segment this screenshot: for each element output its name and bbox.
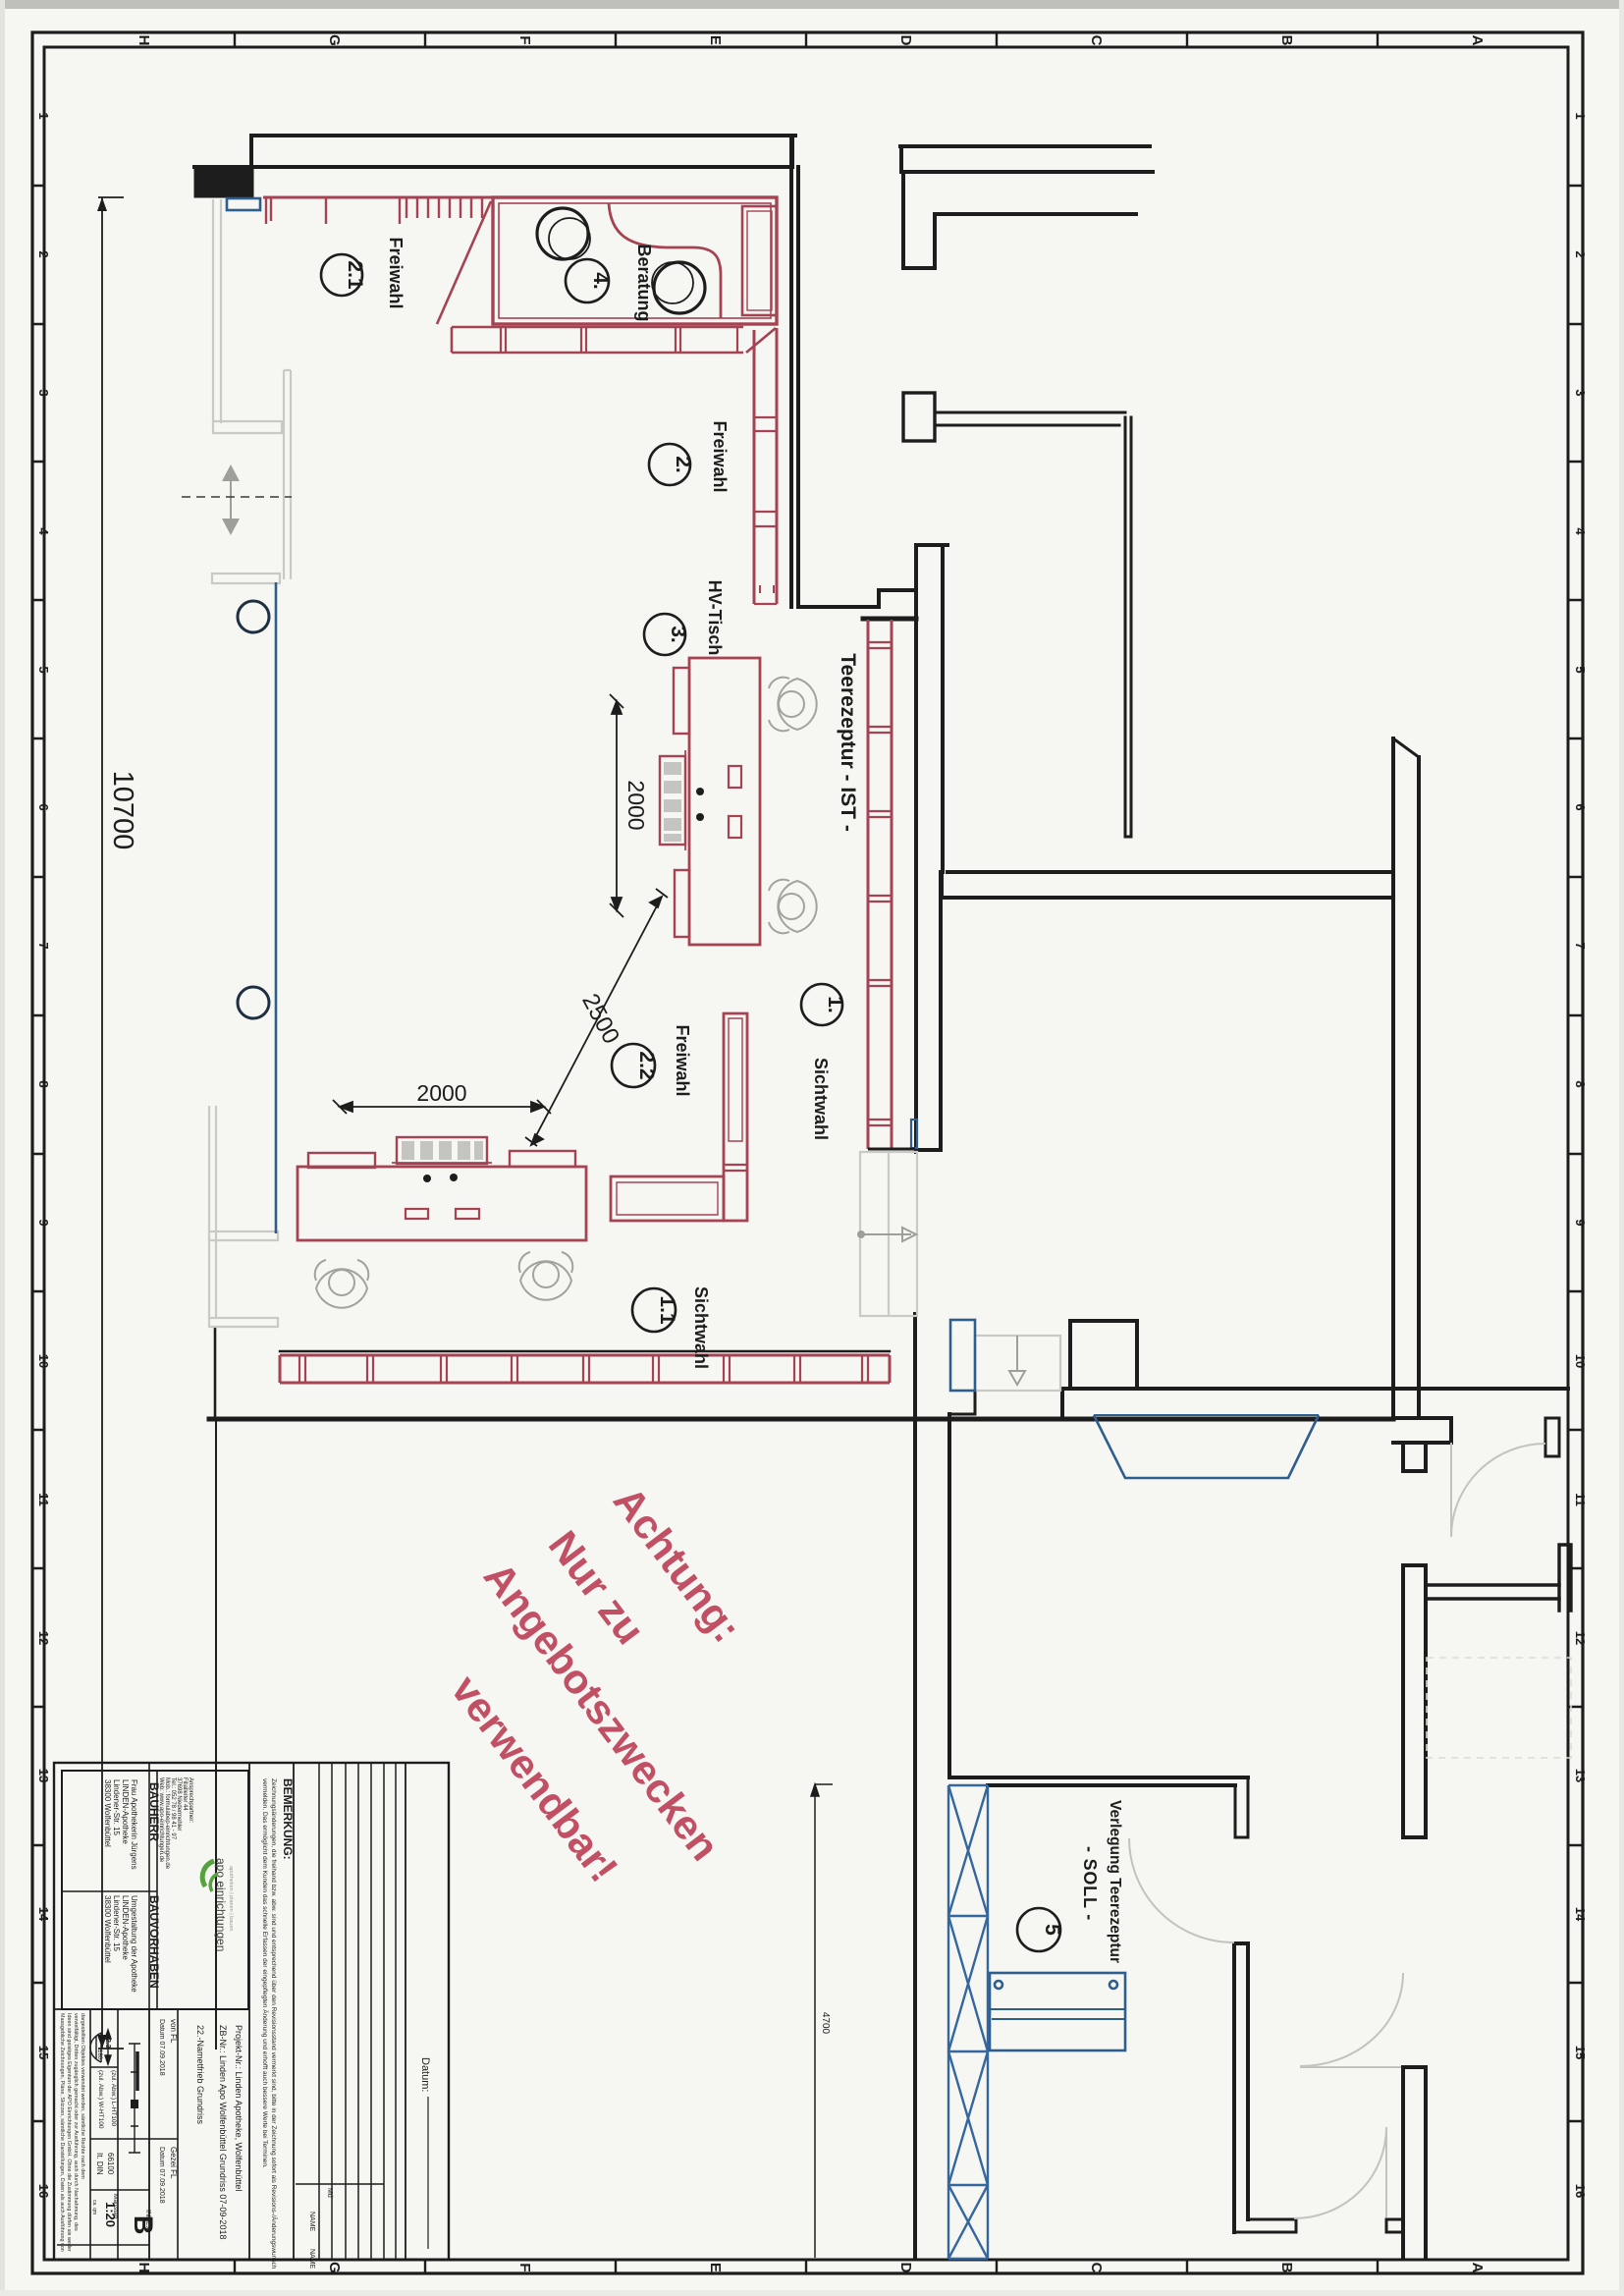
svg-text:14: 14 xyxy=(1573,1907,1588,1922)
svg-text:1: 1 xyxy=(36,112,51,119)
svg-text:2.2: 2.2 xyxy=(635,1051,658,1079)
svg-text:3.: 3. xyxy=(667,626,689,643)
svg-text:1.: 1. xyxy=(824,996,846,1013)
svg-text:11: 11 xyxy=(36,1493,51,1506)
svg-text:10: 10 xyxy=(1573,1354,1588,1368)
svg-text:5: 5 xyxy=(36,666,51,673)
svg-text:H: H xyxy=(135,2263,152,2273)
svg-text:9: 9 xyxy=(36,1219,51,1226)
svg-text:16: 16 xyxy=(36,2184,51,2198)
svg-text:B: B xyxy=(1278,35,1295,46)
svg-text:2.: 2. xyxy=(672,456,694,473)
svg-text:4.: 4. xyxy=(589,272,612,290)
svg-text:BAUVORHABEN: BAUVORHABEN xyxy=(147,1895,161,1989)
svg-text:1:20: 1:20 xyxy=(103,2202,118,2227)
svg-text:Datum:: Datum: xyxy=(419,2057,431,2092)
svg-text:Sichtwahl: Sichtwahl xyxy=(811,1058,831,1140)
svg-text:D: D xyxy=(897,2263,914,2273)
svg-text:Beratung: Beratung xyxy=(634,244,654,321)
svg-text:BEMERKUNG:: BEMERKUNG: xyxy=(281,1778,295,1860)
svg-text:H: H xyxy=(135,35,152,46)
svg-text:2000: 2000 xyxy=(623,780,649,830)
svg-text:E: E xyxy=(707,35,724,45)
svg-text:A: A xyxy=(1469,35,1486,46)
svg-text:(zul. Abw.) W-HT100: (zul. Abw.) W-HT100 xyxy=(97,2070,104,2129)
svg-text:E: E xyxy=(707,2263,724,2272)
svg-text:8: 8 xyxy=(36,1080,51,1087)
svg-text:dargestellten Objektes verwend: dargestellten Objektes verwendet werden,… xyxy=(80,2013,85,2179)
svg-text:4: 4 xyxy=(1573,527,1588,535)
svg-text:2000: 2000 xyxy=(416,1080,466,1106)
svg-text:B: B xyxy=(1278,2263,1295,2273)
svg-text:Lindener-Str. 15: Lindener-Str. 15 xyxy=(112,1895,121,1951)
svg-text:Ideen sind geistiges Eigentum: Ideen sind geistiges Eigentum der APO Ei… xyxy=(66,2013,72,2252)
svg-text:G: G xyxy=(326,2262,343,2273)
svg-text:vervielfältigt, Dritten zugäng: vervielfältigt, Dritten zugänglich gemac… xyxy=(73,2013,79,2231)
svg-text:Massgebliche Zeichnungen, Plän: Massgebliche Zeichnungen, Pläne, Skizzen… xyxy=(59,2013,65,2252)
svg-text:38300 Wolfenbüttel: 38300 Wolfenbüttel xyxy=(103,1895,112,1963)
svg-text:apo einrichtungen: apo einrichtungen xyxy=(214,1858,228,1951)
svg-text:16: 16 xyxy=(1573,2184,1588,2198)
svg-text:apotheken | planen | bauen: apotheken | planen | bauen xyxy=(228,1866,234,1931)
svg-text:11: 11 xyxy=(1573,1493,1588,1506)
svg-text:LINDEN-Apotheke: LINDEN-Apotheke xyxy=(121,1779,130,1844)
svg-text:NAME: NAME xyxy=(308,2249,315,2269)
svg-text:7: 7 xyxy=(36,942,51,949)
svg-text:14: 14 xyxy=(36,1907,51,1922)
svg-text:Frau Apothekerin Jürgens: Frau Apothekerin Jürgens xyxy=(130,1779,138,1870)
svg-text:3: 3 xyxy=(36,389,51,396)
svg-text:10700: 10700 xyxy=(107,771,138,850)
svg-text:12: 12 xyxy=(36,1631,51,1645)
svg-text:- SOLL -: - SOLL - xyxy=(1080,1846,1100,1921)
svg-text:Gezei FL: Gezei FL xyxy=(169,2147,178,2179)
svg-text:vermelden. Das ermöglicht dem: vermelden. Das ermöglicht dem Kunden das… xyxy=(261,1778,269,2168)
svg-text:It. DIN: It. DIN xyxy=(95,2153,104,2175)
svg-text:ZB-Nr.: Linden Apo Wolfenbüt: ZB-Nr.: Linden Apo Wolfenbüttel Grundris… xyxy=(218,2025,228,2239)
svg-text:2: 2 xyxy=(1573,250,1588,257)
svg-text:7: 7 xyxy=(1573,942,1588,949)
svg-text:10: 10 xyxy=(36,1354,51,1368)
svg-text:8: 8 xyxy=(1573,1080,1588,1087)
svg-text:Freiwahl: Freiwahl xyxy=(386,237,406,308)
svg-text:2.1: 2.1 xyxy=(344,260,366,290)
svg-text:12: 12 xyxy=(1573,1631,1588,1645)
svg-text:F: F xyxy=(516,2263,533,2271)
svg-text:ca. qm: ca. qm xyxy=(91,2200,97,2214)
svg-text:Zeichnungsänderungen, die frei: Zeichnungsänderungen, die freihand bzw. … xyxy=(270,1778,278,2269)
svg-text:A: A xyxy=(1469,2263,1486,2273)
svg-text:LINDEN-Apotheke: LINDEN-Apotheke xyxy=(121,1895,130,1960)
svg-text:4: 4 xyxy=(36,527,51,535)
svg-text:Datum 07.09.2018: Datum 07.09.2018 xyxy=(158,2147,165,2204)
svg-text:C: C xyxy=(1088,35,1105,46)
svg-text:Lindener-Str. 15: Lindener-Str. 15 xyxy=(112,1779,121,1835)
svg-text:Freiwahl: Freiwahl xyxy=(673,1024,692,1096)
svg-text:Projekt-Nr.: Linden Apotheke: Projekt-Nr.: Linden Apotheke, Wolfenbütt… xyxy=(234,2025,244,2191)
svg-text:D: D xyxy=(897,35,914,46)
svg-text:(zul. Abw.) L-HT100: (zul. Abw.) L-HT100 xyxy=(110,2070,117,2126)
svg-text:66100: 66100 xyxy=(106,2153,115,2175)
svg-text:2: 2 xyxy=(36,250,51,257)
svg-text:Umgestaltung der Apotheke: Umgestaltung der Apotheke xyxy=(130,1895,138,1993)
svg-text:5: 5 xyxy=(1041,1924,1063,1936)
svg-text:Md: Md xyxy=(326,2188,333,2198)
svg-text:13: 13 xyxy=(1573,1769,1588,1782)
svg-text:5: 5 xyxy=(1573,666,1588,673)
svg-text:NAME: NAME xyxy=(308,2212,315,2232)
svg-text:Datum 07.09.2018: Datum 07.09.2018 xyxy=(158,2019,165,2076)
svg-text:22.-Nametfrieb Grundriss: 22.-Nametfrieb Grundriss xyxy=(195,2025,205,2125)
svg-text:G: G xyxy=(326,34,343,46)
svg-text:13: 13 xyxy=(36,1769,51,1782)
svg-text:B: B xyxy=(129,2215,158,2235)
svg-text:6: 6 xyxy=(1573,803,1588,810)
svg-text:15: 15 xyxy=(1573,2046,1588,2059)
svg-text:von FL: von FL xyxy=(169,2019,178,2044)
svg-text:4700: 4700 xyxy=(820,2012,831,2035)
svg-text:1.1: 1.1 xyxy=(656,1295,678,1325)
svg-text:15: 15 xyxy=(36,2046,51,2059)
svg-text:Sichtwahl: Sichtwahl xyxy=(691,1286,711,1369)
svg-text:HV-Tisch: HV-Tisch xyxy=(705,580,725,656)
svg-text:Web: www.apo-einrichtungen.de: Web: www.apo-einrichtungen.de xyxy=(158,1777,164,1863)
svg-text:6: 6 xyxy=(36,803,51,810)
svg-text:Freiwahl: Freiwahl xyxy=(710,420,730,492)
svg-text:Verlegung Teerezeptur: Verlegung Teerezeptur xyxy=(1107,1800,1123,1963)
svg-text:Teerezeptur - IST -: Teerezeptur - IST - xyxy=(837,653,859,832)
svg-text:C: C xyxy=(1088,2263,1105,2273)
svg-text:3: 3 xyxy=(1573,389,1588,396)
svg-text:1: 1 xyxy=(1573,112,1588,119)
svg-text:F: F xyxy=(516,35,533,44)
svg-text:38300 Wolfenbüttel: 38300 Wolfenbüttel xyxy=(103,1779,112,1847)
svg-text:9: 9 xyxy=(1573,1219,1588,1226)
